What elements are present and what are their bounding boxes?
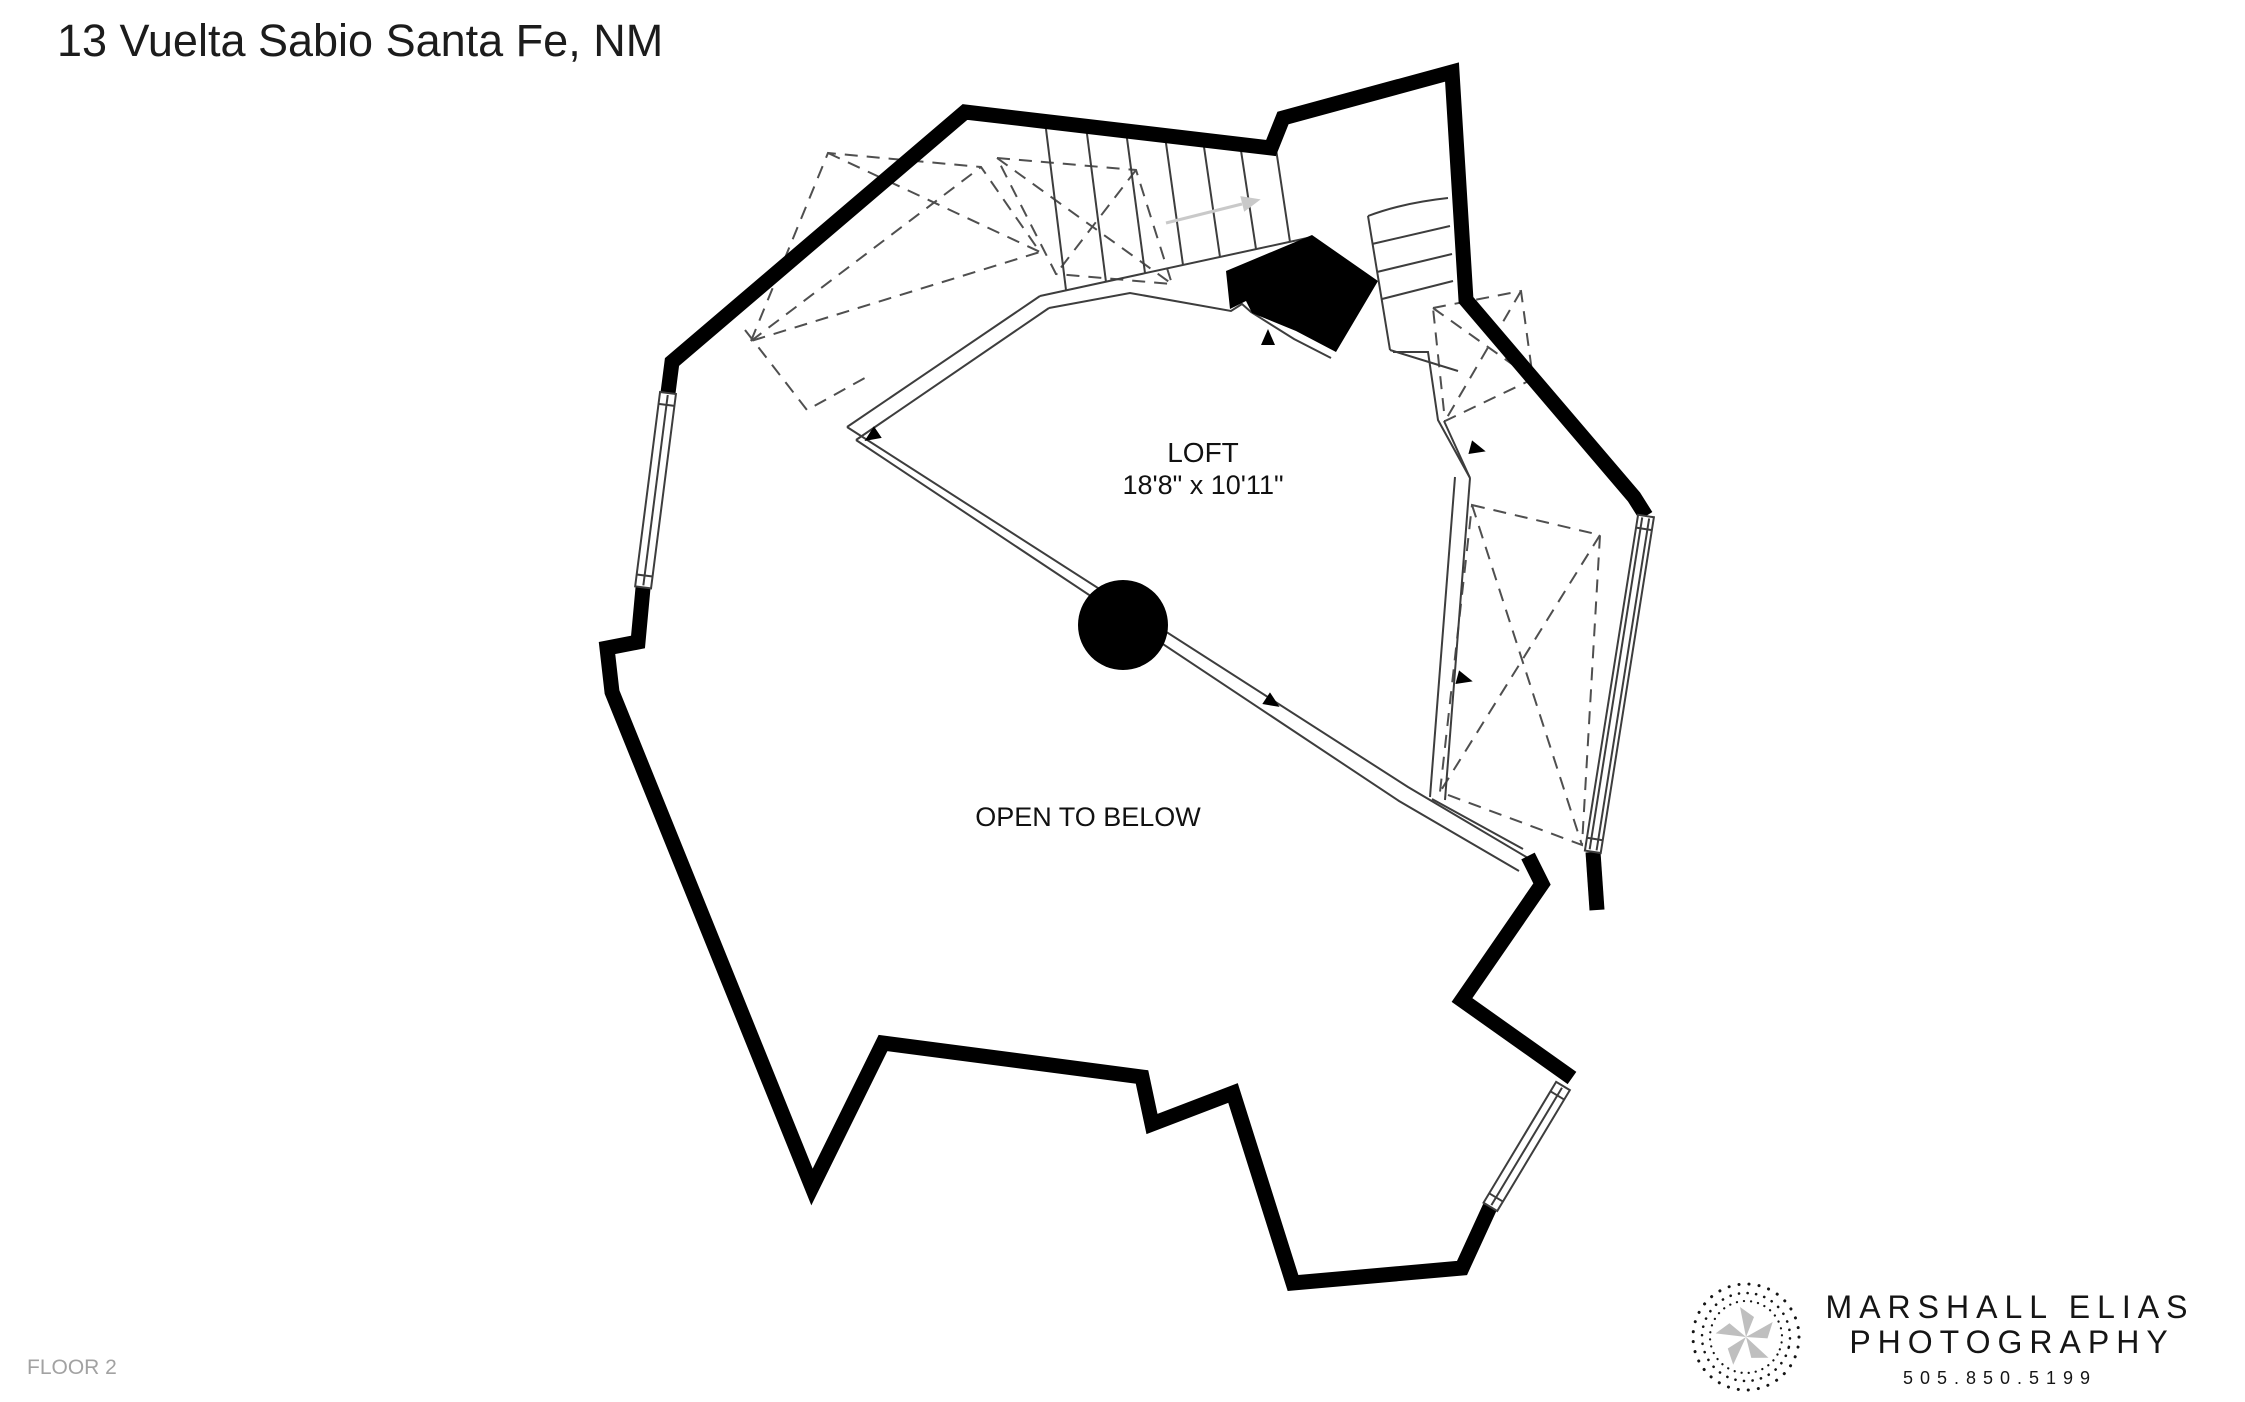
stair-tread	[1045, 121, 1066, 290]
stair-arrow-head	[1240, 192, 1262, 212]
stair-landing-line	[1393, 352, 1470, 478]
closet-x-line	[997, 158, 1172, 284]
window-east	[1585, 515, 1654, 853]
page-title: 13 Vuelta Sabio Santa Fe, NM	[57, 15, 663, 66]
wall-pier-east	[1593, 852, 1597, 910]
stair-tread	[1203, 140, 1220, 257]
stair-tread	[1165, 136, 1183, 265]
camera-shutter-icon	[1693, 1284, 1800, 1391]
ceiling-break-line	[745, 330, 872, 410]
stair-landing-line	[1390, 350, 1458, 371]
structural-column	[1078, 580, 1168, 670]
wall-north	[668, 72, 1646, 516]
closet-x-line	[1056, 170, 1136, 274]
arrow-marker	[1468, 440, 1487, 458]
stair-arrow-shaft	[1166, 204, 1242, 223]
direction-arrows	[861, 329, 1488, 713]
closet-edge-line	[1444, 421, 1470, 478]
logo-phone-number: 505.850.5199	[1903, 1368, 2097, 1388]
stair-tread	[1086, 126, 1106, 282]
photographer-logo: MARSHALL ELIAS PHOTOGRAPHY 505.850.5199	[1693, 1284, 2195, 1391]
chimney-mass	[1226, 235, 1378, 352]
exterior-walls	[607, 72, 1646, 1283]
arrow-marker	[1455, 670, 1474, 688]
loft-room-label: LOFT	[1167, 437, 1239, 468]
stair-tread-curved	[1368, 198, 1448, 216]
loft-edge-line	[856, 308, 1049, 440]
loft-edge-line	[847, 296, 1040, 427]
closet-edge-line	[1430, 477, 1455, 797]
stair-tread	[1276, 149, 1290, 242]
shutter-star	[1716, 1307, 1777, 1366]
floor-plan-canvas: 13 Vuelta Sabio Santa Fe, NM LOFT 18'8" …	[0, 0, 2245, 1402]
window-northwest	[635, 392, 676, 588]
closet-x-line	[1440, 535, 1600, 792]
loft-room-dimensions: 18'8" x 10'11"	[1122, 470, 1283, 500]
open-to-below-label: OPEN TO BELOW	[975, 802, 1201, 832]
stair-tread	[1382, 281, 1453, 299]
window-southeast	[1484, 1082, 1570, 1211]
floor-number-label: FLOOR 2	[27, 1356, 117, 1379]
logo-name-line1: MARSHALL ELIAS	[1826, 1289, 2195, 1325]
closet-dashed-box-left	[751, 153, 1040, 341]
wall-southeast-upper	[1462, 856, 1572, 1078]
logo-name-line2: PHOTOGRAPHY	[1849, 1324, 2174, 1360]
stair-tread	[1377, 254, 1452, 272]
wall-south	[607, 588, 1490, 1283]
closet-x-line	[1472, 505, 1582, 845]
stair-tread	[1372, 226, 1450, 244]
arrow-marker	[1261, 329, 1275, 345]
floor-plan-page: 13 Vuelta Sabio Santa Fe, NM LOFT 18'8" …	[0, 0, 2245, 1402]
